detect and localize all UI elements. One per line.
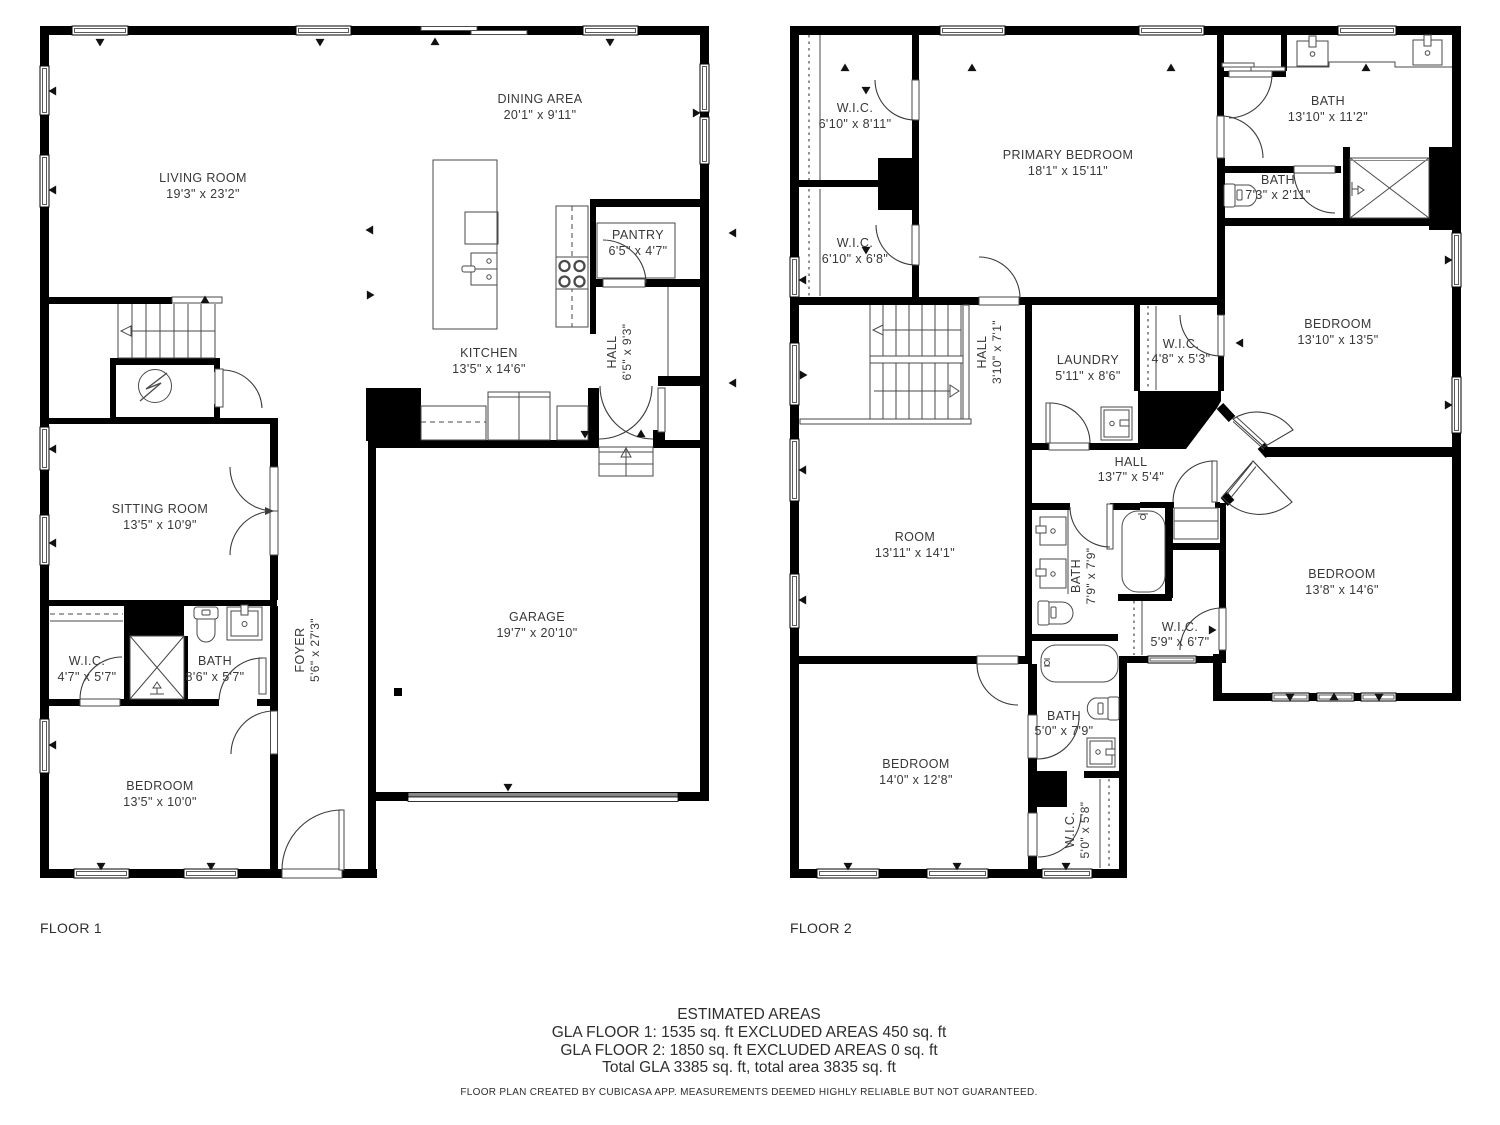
svg-text:6'5" x 4'7": 6'5" x 4'7"	[608, 244, 667, 258]
svg-text:DINING AREA: DINING AREA	[498, 92, 583, 106]
svg-text:W.I.C.: W.I.C.	[1163, 337, 1199, 351]
svg-text:GLA FLOOR 2: 1850 sq. ft EXCLU: GLA FLOOR 2: 1850 sq. ft EXCLUDED AREAS …	[560, 1042, 938, 1059]
svg-text:4'7" x 5'7": 4'7" x 5'7"	[57, 670, 116, 684]
svg-text:7'3" x 2'11": 7'3" x 2'11"	[1245, 188, 1310, 202]
svg-text:PRIMARY BEDROOM: PRIMARY BEDROOM	[1003, 148, 1134, 162]
svg-text:LIVING ROOM: LIVING ROOM	[159, 171, 247, 185]
svg-text:13'5" x 14'6": 13'5" x 14'6"	[452, 362, 526, 376]
svg-text:6'10" x 8'11": 6'10" x 8'11"	[819, 117, 892, 131]
svg-text:18'1" x 15'11": 18'1" x 15'11"	[1028, 164, 1108, 178]
svg-text:W.I.C.: W.I.C.	[837, 101, 873, 115]
svg-text:13'11" x 14'1": 13'11" x 14'1"	[875, 546, 955, 560]
svg-text:BEDROOM: BEDROOM	[882, 757, 949, 771]
svg-text:GLA FLOOR 1: 1535 sq. ft EXCLU: GLA FLOOR 1: 1535 sq. ft EXCLUDED AREAS …	[552, 1024, 947, 1041]
svg-text:W.I.C.: W.I.C.	[69, 654, 105, 668]
svg-text:5'0" x 5'8": 5'0" x 5'8"	[1078, 802, 1092, 859]
svg-text:13'7" x 5'4": 13'7" x 5'4"	[1098, 470, 1164, 484]
svg-text:19'7" x 20'10": 19'7" x 20'10"	[496, 626, 577, 640]
svg-text:5'0" x 7'9": 5'0" x 7'9"	[1034, 724, 1093, 738]
svg-text:ESTIMATED AREAS: ESTIMATED AREAS	[677, 1006, 821, 1023]
svg-text:BEDROOM: BEDROOM	[126, 779, 193, 793]
svg-text:HALL: HALL	[975, 336, 989, 369]
svg-text:FLOOR 2: FLOOR 2	[790, 920, 852, 936]
svg-text:FLOOR 1: FLOOR 1	[40, 920, 102, 936]
svg-text:GARAGE: GARAGE	[509, 610, 565, 624]
svg-text:BEDROOM: BEDROOM	[1308, 567, 1375, 581]
svg-text:19'3" x 23'2": 19'3" x 23'2"	[166, 187, 240, 201]
svg-text:ROOM: ROOM	[895, 530, 936, 544]
svg-text:8'6" x 5'7": 8'6" x 5'7"	[185, 670, 244, 684]
svg-text:13'5" x 10'0": 13'5" x 10'0"	[123, 795, 197, 809]
svg-text:SITTING ROOM: SITTING ROOM	[112, 502, 208, 516]
svg-text:5'6" x 27'3": 5'6" x 27'3"	[308, 618, 322, 682]
svg-text:6'5" x 9'3": 6'5" x 9'3"	[620, 324, 634, 381]
svg-text:PANTRY: PANTRY	[612, 228, 664, 242]
svg-text:3'10" x 7'1": 3'10" x 7'1"	[990, 320, 1004, 384]
svg-text:BATH: BATH	[1069, 559, 1083, 593]
svg-text:13'10" x 11'2": 13'10" x 11'2"	[1288, 110, 1368, 124]
svg-text:4'8" x 5'3": 4'8" x 5'3"	[1151, 352, 1210, 366]
svg-text:13'8" x 14'6": 13'8" x 14'6"	[1305, 583, 1379, 597]
svg-text:Total GLA 3385 sq. ft, total a: Total GLA 3385 sq. ft, total area 3835 s…	[602, 1059, 897, 1076]
svg-text:BATH: BATH	[1261, 173, 1295, 187]
svg-text:13'10" x 13'5": 13'10" x 13'5"	[1297, 333, 1378, 347]
svg-text:FOYER: FOYER	[293, 627, 307, 672]
svg-text:BATH: BATH	[1047, 709, 1081, 723]
svg-text:7'9" x 7'9": 7'9" x 7'9"	[1084, 548, 1098, 605]
svg-text:5'11" x 8'6": 5'11" x 8'6"	[1055, 369, 1120, 383]
svg-text:BEDROOM: BEDROOM	[1304, 317, 1371, 331]
svg-text:FLOOR PLAN CREATED BY CUBICASA: FLOOR PLAN CREATED BY CUBICASA APP. MEAS…	[460, 1087, 1037, 1098]
svg-text:14'0" x 12'8": 14'0" x 12'8"	[879, 773, 953, 787]
svg-text:HALL: HALL	[1115, 455, 1148, 469]
svg-text:20'1" x 9'11": 20'1" x 9'11"	[504, 108, 577, 122]
svg-text:LAUNDRY: LAUNDRY	[1057, 353, 1120, 367]
svg-text:BATH: BATH	[198, 654, 232, 668]
svg-text:6'10" x 6'8": 6'10" x 6'8"	[822, 252, 888, 266]
svg-text:5'9" x 6'7": 5'9" x 6'7"	[1150, 635, 1209, 649]
svg-text:W.I.C.: W.I.C.	[1162, 620, 1198, 634]
svg-text:KITCHEN: KITCHEN	[460, 346, 518, 360]
svg-text:W.I.C.: W.I.C.	[1063, 812, 1077, 848]
svg-text:13'5" x 10'9": 13'5" x 10'9"	[123, 518, 197, 532]
svg-text:BATH: BATH	[1311, 94, 1345, 108]
svg-text:HALL: HALL	[605, 336, 619, 369]
